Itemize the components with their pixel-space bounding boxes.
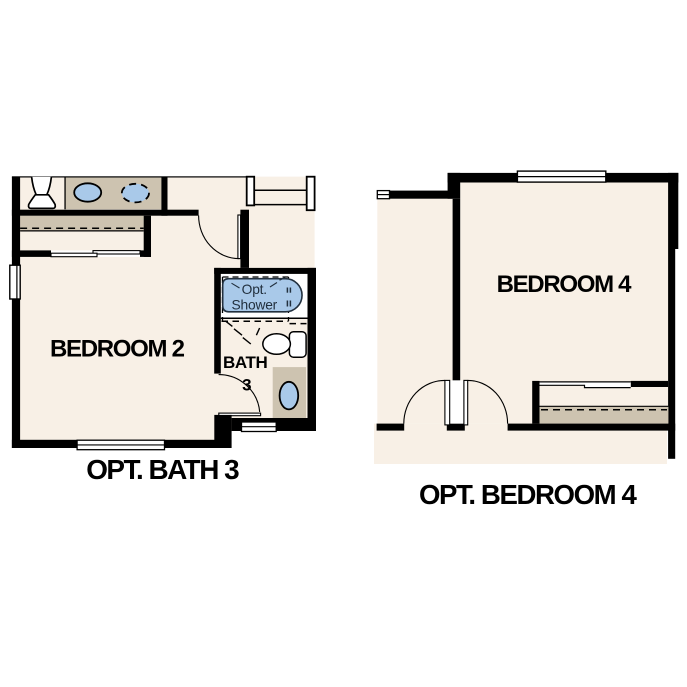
svg-text:OPT. BATH 3: OPT. BATH 3 <box>86 454 239 485</box>
svg-text:BATH: BATH <box>223 353 267 372</box>
svg-text:Shower: Shower <box>232 298 278 313</box>
svg-text:OPT. BEDROOM 4: OPT. BEDROOM 4 <box>419 479 638 510</box>
svg-text:BEDROOM 2: BEDROOM 2 <box>50 335 185 362</box>
svg-text:Opt.: Opt. <box>242 282 267 297</box>
svg-text:BEDROOM 4: BEDROOM 4 <box>497 271 633 298</box>
